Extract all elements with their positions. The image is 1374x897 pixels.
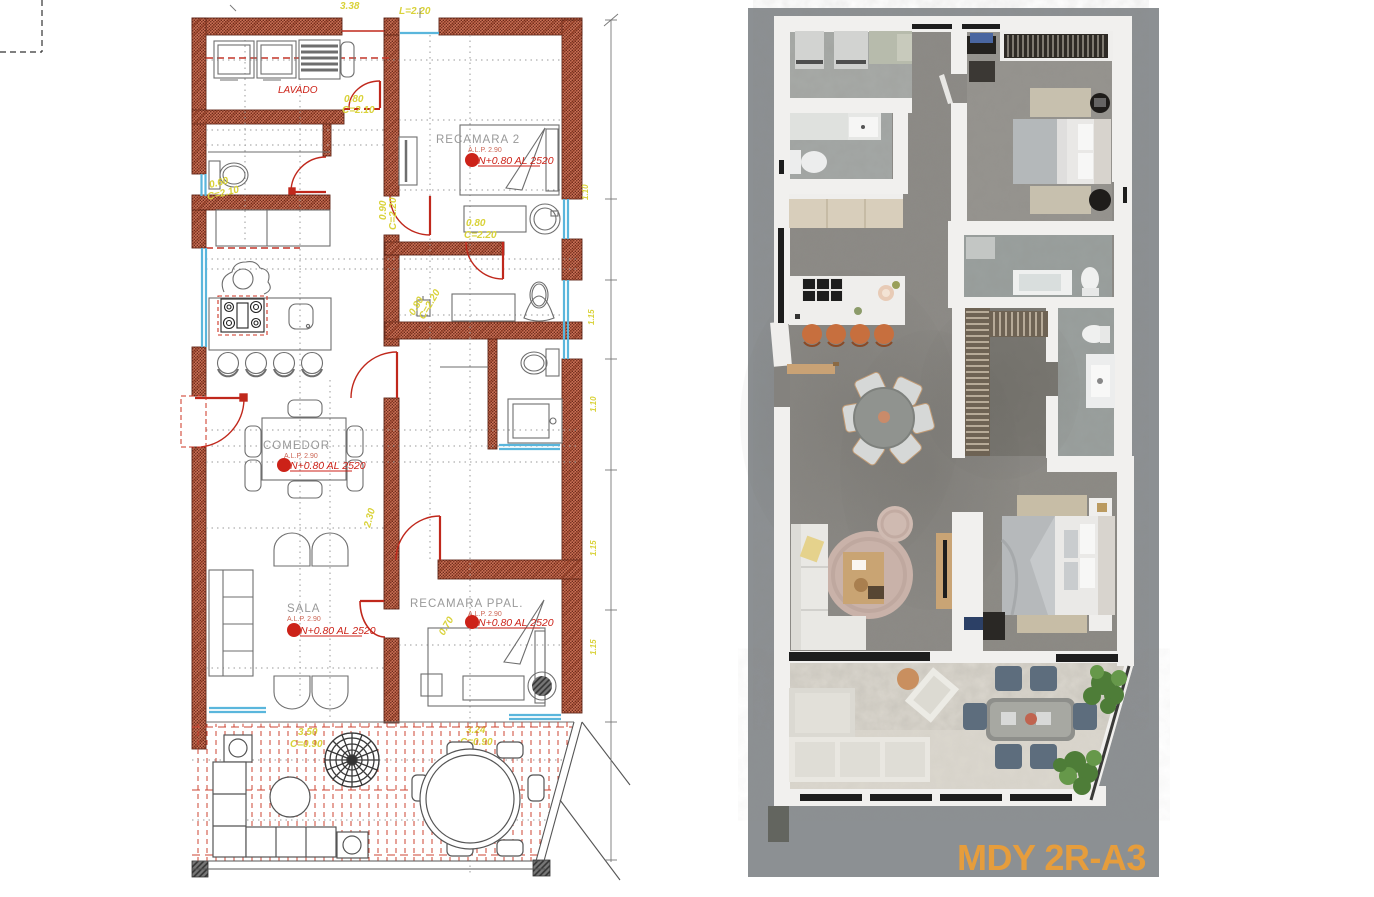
svg-text:LAVADO: LAVADO bbox=[278, 85, 318, 96]
svg-text:0.80: 0.80 bbox=[466, 218, 486, 229]
svg-text:N+0.80 AL 2520: N+0.80 AL 2520 bbox=[290, 460, 366, 472]
svg-text:C=2.10: C=2.10 bbox=[342, 105, 375, 116]
svg-text:0.80: 0.80 bbox=[344, 94, 364, 105]
svg-text:RECAMARA 2: RECAMARA 2 bbox=[436, 134, 520, 146]
svg-text:A.L.P. 2.90: A.L.P. 2.90 bbox=[468, 147, 502, 154]
svg-text:N+0.80 AL 2520: N+0.80 AL 2520 bbox=[478, 155, 554, 167]
svg-text:N+0.80 AL 2520: N+0.80 AL 2520 bbox=[300, 625, 376, 637]
svg-text:A.L.P. 2.90: A.L.P. 2.90 bbox=[287, 616, 321, 623]
svg-text:2.30: 2.30 bbox=[362, 507, 378, 530]
svg-text:COMEDOR: COMEDOR bbox=[263, 440, 330, 452]
svg-text:SALA: SALA bbox=[287, 603, 320, 615]
svg-text:A.L.P. 2.90: A.L.P. 2.90 bbox=[284, 453, 318, 460]
svg-text:MDY 2R-A3: MDY 2R-A3 bbox=[957, 837, 1146, 878]
svg-text:3.38: 3.38 bbox=[340, 1, 360, 12]
svg-text:1.15: 1.15 bbox=[587, 309, 596, 325]
svg-text:0.70: 0.70 bbox=[437, 615, 456, 638]
svg-text:RECAMARA PPAL.: RECAMARA PPAL. bbox=[410, 598, 524, 610]
svg-text:C=2.20: C=2.20 bbox=[388, 197, 399, 230]
svg-text:1.10: 1.10 bbox=[581, 184, 590, 200]
svg-text:N+0.80 AL 2520: N+0.80 AL 2520 bbox=[478, 617, 554, 629]
svg-text:L=2.20: L=2.20 bbox=[399, 6, 431, 17]
svg-text:1.10: 1.10 bbox=[589, 396, 598, 412]
svg-text:C=2.20: C=2.20 bbox=[464, 230, 497, 241]
svg-text:1.15: 1.15 bbox=[589, 639, 598, 655]
svg-text:1.15: 1.15 bbox=[589, 540, 598, 556]
